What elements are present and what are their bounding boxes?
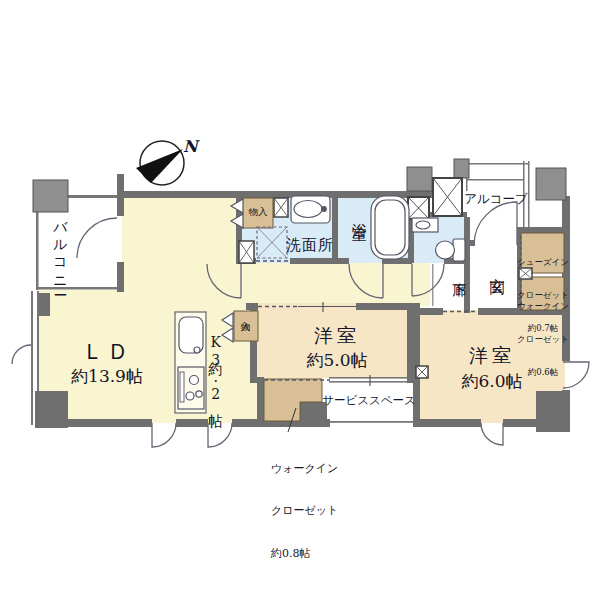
entrance-label: 玄関: [488, 266, 506, 272]
walk-in-closet-08-label: ウォークイン クローゼット 約0.8帖: [271, 433, 338, 576]
bedroom5-label: 洋室: [314, 324, 360, 347]
floor-plan: バルコニー ＬＤ 約13.9帖 K約3.2帖 洗面所 浴室 廊下 玄関 アルコー…: [0, 0, 600, 600]
washroom-label: 洗面所: [286, 236, 334, 254]
alcove-label: アルコーブ: [464, 191, 528, 206]
bedroom6-label: 洋室: [469, 344, 515, 367]
service-space-label: サービススペース: [322, 394, 416, 408]
bathtub: [371, 196, 409, 259]
bathroom-label: 浴室: [350, 211, 368, 217]
balcony-label: バルコニー: [52, 211, 69, 290]
washroom-basin: [291, 196, 330, 223]
living-dining-size: 約13.9帖: [71, 366, 143, 386]
storage-top-label: 物入: [249, 206, 268, 217]
living-dining-label: ＬＤ: [82, 339, 132, 365]
kitchen-label: K約3.2帖: [207, 334, 224, 404]
hallway-label: 廊下: [451, 271, 468, 275]
walk-in-closet-06-label: ウォークイン クローゼット 約0.6帖: [517, 279, 569, 389]
kitchen-counter: [175, 312, 206, 413]
compass-north-label: N: [183, 137, 198, 156]
compass: [136, 141, 184, 185]
bedroom6-size: 約6.0帖: [461, 371, 522, 391]
bedroom5-size: 約5.0帖: [306, 350, 367, 370]
